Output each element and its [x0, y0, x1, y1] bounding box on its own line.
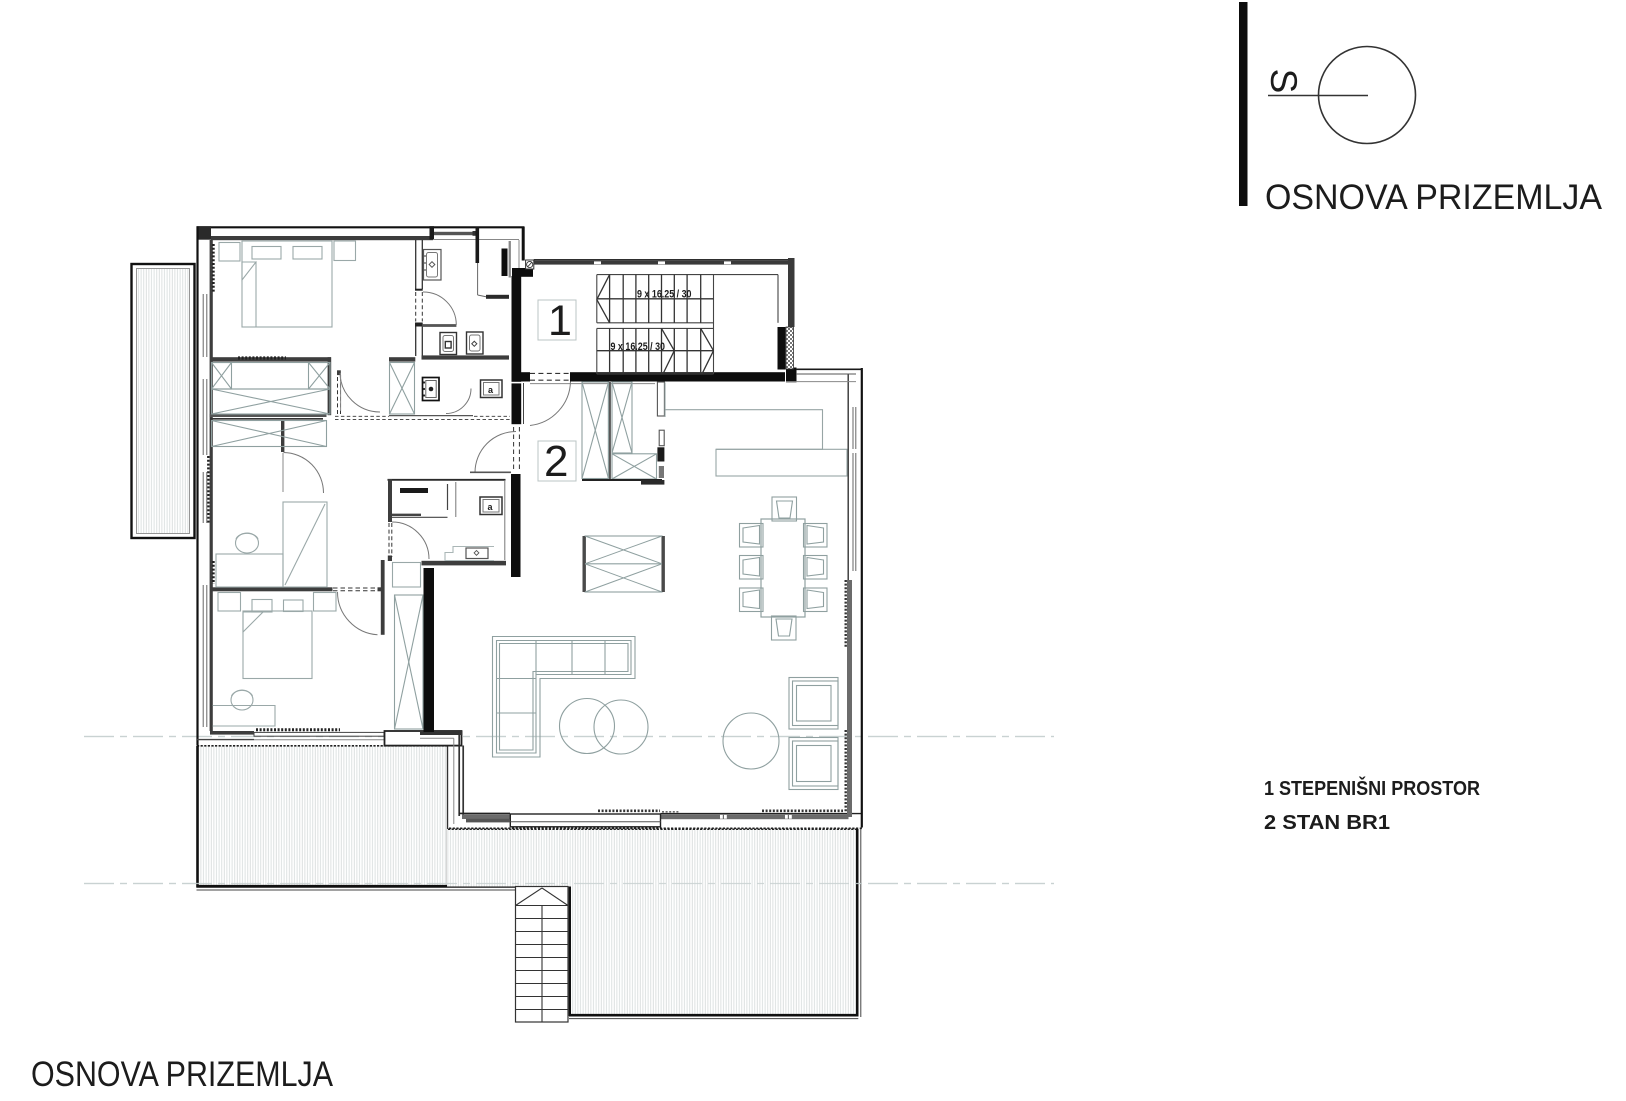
svg-text:1 STEPENIŠNI PROSTOR: 1 STEPENIŠNI PROSTOR — [1264, 776, 1480, 800]
svg-text:9 x 16.25 / 30: 9 x 16.25 / 30 — [637, 289, 692, 301]
svg-text:9 x 16.25 / 30: 9 x 16.25 / 30 — [611, 341, 666, 353]
svg-text:2 STAN BR1: 2 STAN BR1 — [1264, 811, 1390, 834]
svg-text:OSNOVA PRIZEMLJA: OSNOVA PRIZEMLJA — [1265, 177, 1602, 217]
svg-text:OSNOVA PRIZEMLJA: OSNOVA PRIZEMLJA — [31, 1054, 333, 1094]
svg-text:S: S — [1263, 69, 1304, 94]
svg-text:1: 1 — [548, 297, 572, 345]
svg-text:2: 2 — [544, 437, 568, 486]
